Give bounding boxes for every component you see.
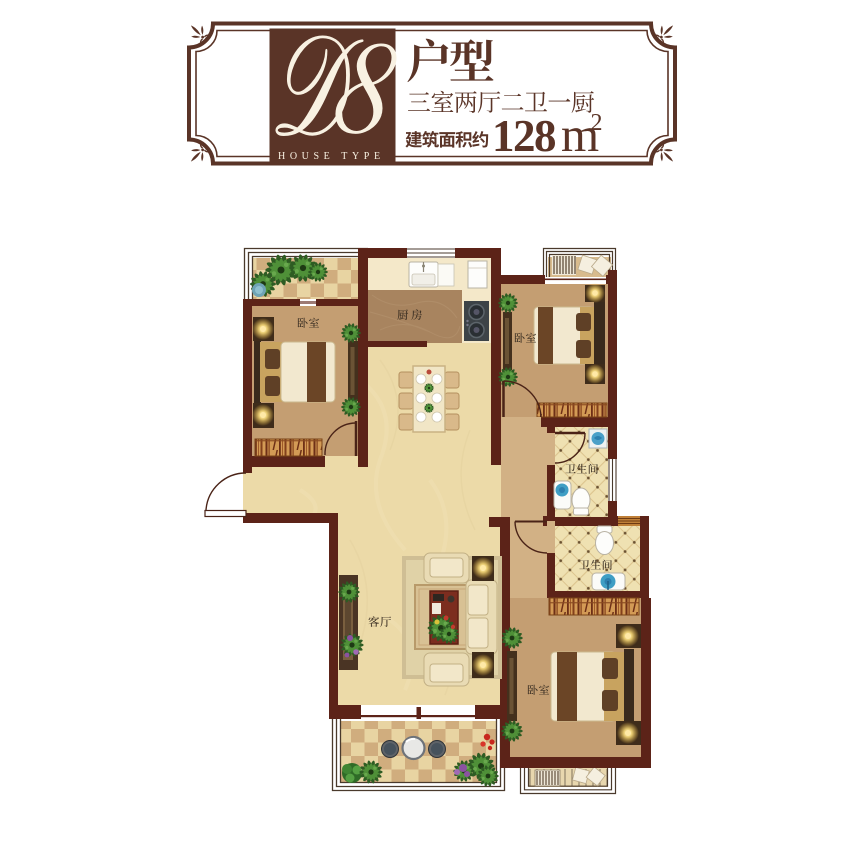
svg-text:HOUSE TYPE: HOUSE TYPE [278, 151, 385, 162]
svg-text:2: 2 [591, 110, 603, 136]
svg-text:128: 128 [492, 111, 555, 161]
